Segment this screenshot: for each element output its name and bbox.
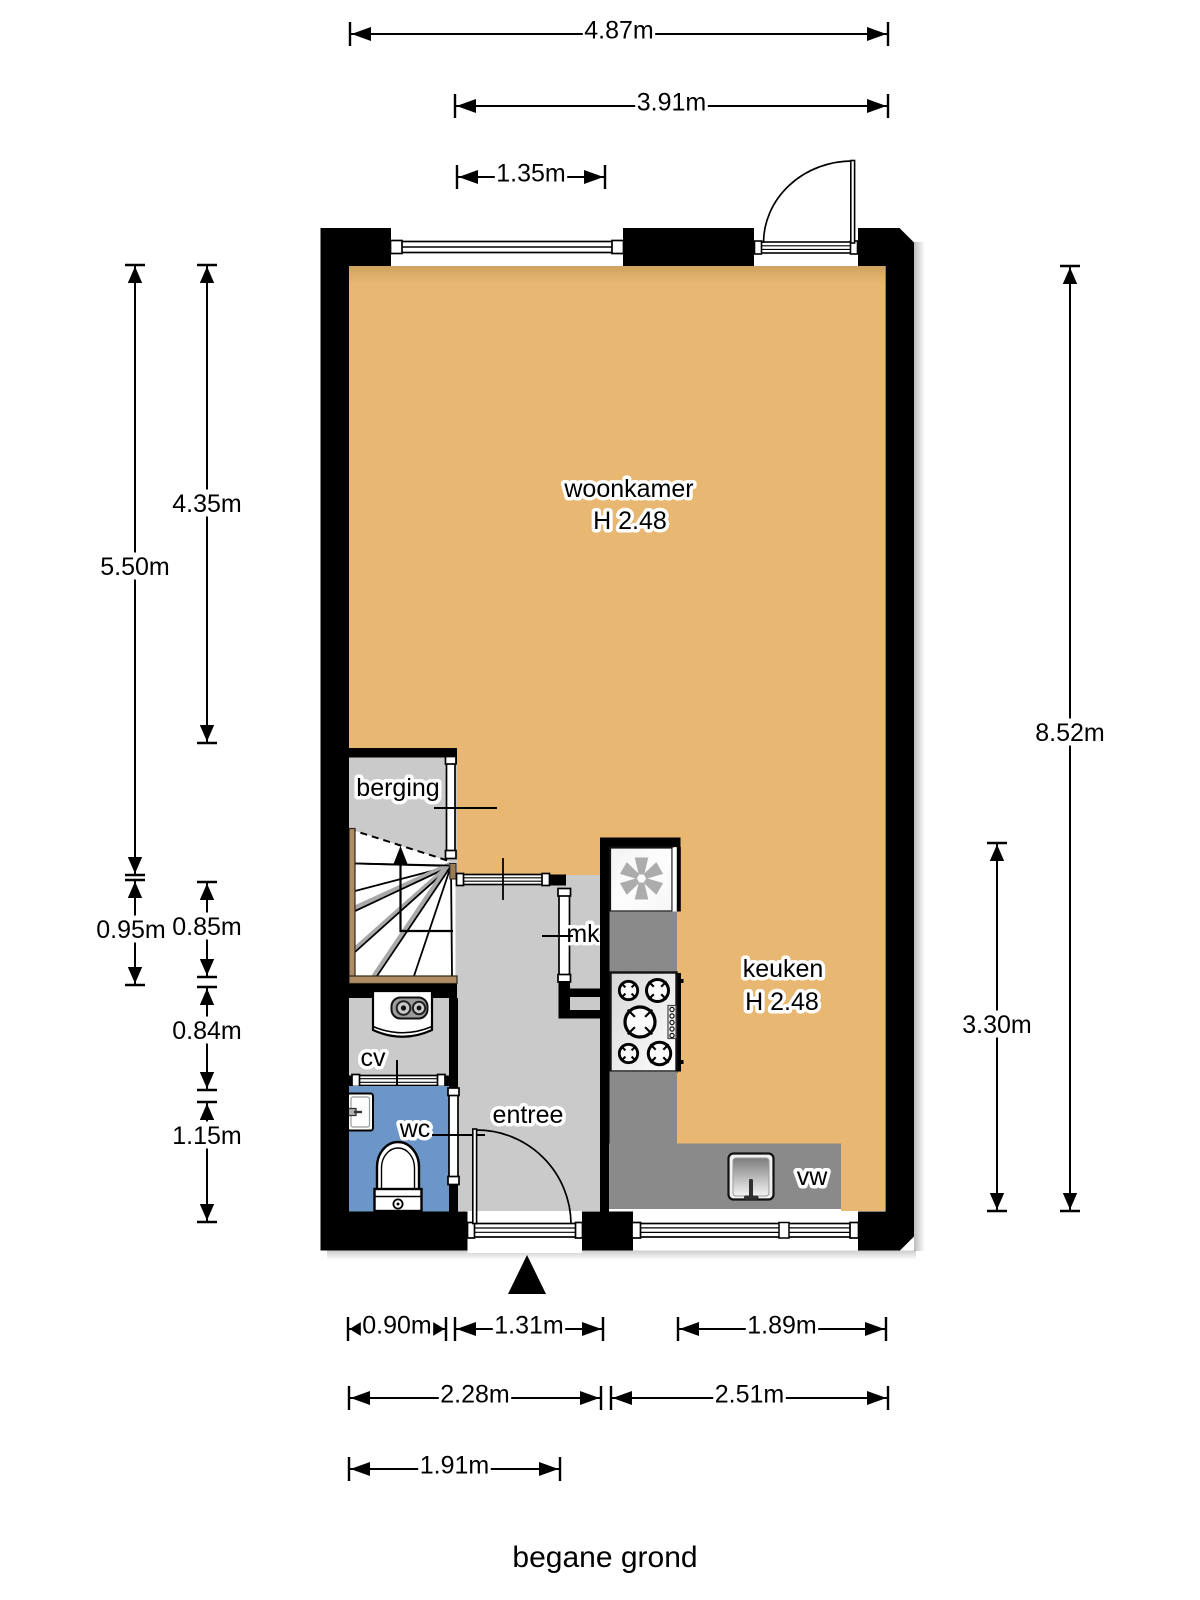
svg-text:0.85m: 0.85m [172, 913, 241, 941]
svg-text:wc: wc [399, 1115, 431, 1143]
svg-text:0.90m: 0.90m [362, 1312, 431, 1340]
svg-text:1.15m: 1.15m [172, 1122, 241, 1150]
svg-text:cv: cv [361, 1044, 387, 1072]
svg-text:berging: berging [356, 774, 439, 802]
svg-text:mk: mk [566, 920, 600, 948]
svg-text:keuken: keuken [743, 955, 824, 983]
svg-text:1.89m: 1.89m [747, 1312, 816, 1340]
svg-text:3.91m: 3.91m [637, 89, 706, 117]
svg-text:4.35m: 4.35m [172, 490, 241, 518]
svg-text:1.91m: 1.91m [420, 1452, 489, 1480]
svg-text:H 2.48: H 2.48 [745, 988, 819, 1016]
svg-text:entree: entree [493, 1101, 564, 1129]
svg-text:2.51m: 2.51m [715, 1381, 784, 1409]
svg-text:begane grond: begane grond [512, 1541, 697, 1574]
svg-text:woonkamer: woonkamer [563, 475, 693, 503]
svg-text:vw: vw [797, 1163, 829, 1191]
svg-text:8.52m: 8.52m [1035, 719, 1104, 747]
svg-text:1.31m: 1.31m [494, 1312, 563, 1340]
svg-text:0.95m: 0.95m [96, 916, 165, 944]
svg-text:1.35m: 1.35m [496, 160, 565, 188]
svg-text:2.28m: 2.28m [440, 1381, 509, 1409]
svg-text:0.84m: 0.84m [172, 1017, 241, 1045]
svg-text:5.50m: 5.50m [100, 553, 169, 581]
svg-text:H 2.48: H 2.48 [593, 507, 667, 535]
svg-text:3.30m: 3.30m [962, 1011, 1031, 1039]
svg-text:4.87m: 4.87m [584, 17, 653, 45]
